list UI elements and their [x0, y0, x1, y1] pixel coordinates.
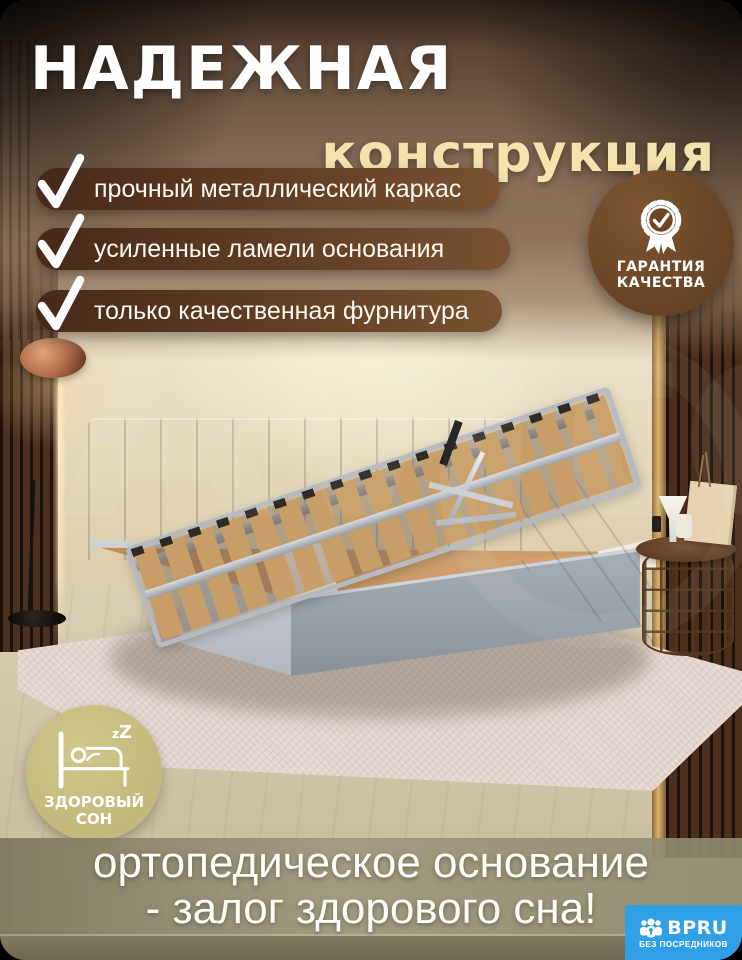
zz-sleep-symbol: zZ — [112, 722, 132, 743]
footer-line-2: - залог здорового сна! — [146, 886, 597, 932]
brand-tagline: БЕЗ ПОСРЕДНИКОВ — [639, 940, 728, 949]
floor-lamp-base — [8, 610, 66, 627]
watermark-ring — [440, 330, 742, 648]
checkmark-icon — [34, 212, 88, 270]
quality-badge-line-1: ГАРАНТИЯ — [617, 259, 706, 275]
brand-logo-block: BPRU БЕЗ ПОСРЕДНИКОВ — [625, 905, 742, 960]
checkmark-icon — [34, 274, 88, 332]
sleep-badge-line-1: ЗДОРОВЫЙ — [44, 794, 144, 811]
ad-image: Avito НАДЕЖНАЯ конструкция прочный метал… — [0, 0, 742, 960]
ad-card: Avito НАДЕЖНАЯ конструкция прочный метал… — [0, 0, 742, 960]
feature-label: прочный металлический каркас — [94, 175, 461, 204]
header-slat-texture — [0, 40, 30, 340]
quality-guarantee-badge: ГАРАНТИЯ КАЧЕСТВА — [588, 170, 734, 316]
quality-badge-line-2: КАЧЕСТВА — [617, 275, 706, 291]
feature-pill-frame: прочный металлический каркас — [36, 168, 500, 210]
feature-pill-slats: усиленные ламели основания — [36, 228, 510, 270]
feature-label: усиленные ламели основания — [94, 235, 444, 264]
feature-label: только качественная фурнитура — [94, 297, 469, 326]
brand-name: BPRU — [667, 917, 727, 939]
feature-pill-hardware: только качественная фурнитура — [36, 290, 502, 332]
sleep-badge-line-2: СОН — [76, 811, 112, 828]
checkmark-icon — [34, 152, 88, 210]
people-lock-icon — [639, 917, 663, 939]
healthy-sleep-badge: zZ ЗДОРОВЫЙ СОН — [26, 705, 162, 841]
headline-line-1: НАДЕЖНАЯ — [30, 34, 453, 104]
footer-line-1: ортопедическое основание — [93, 840, 649, 886]
medal-rosette-icon — [629, 195, 693, 259]
